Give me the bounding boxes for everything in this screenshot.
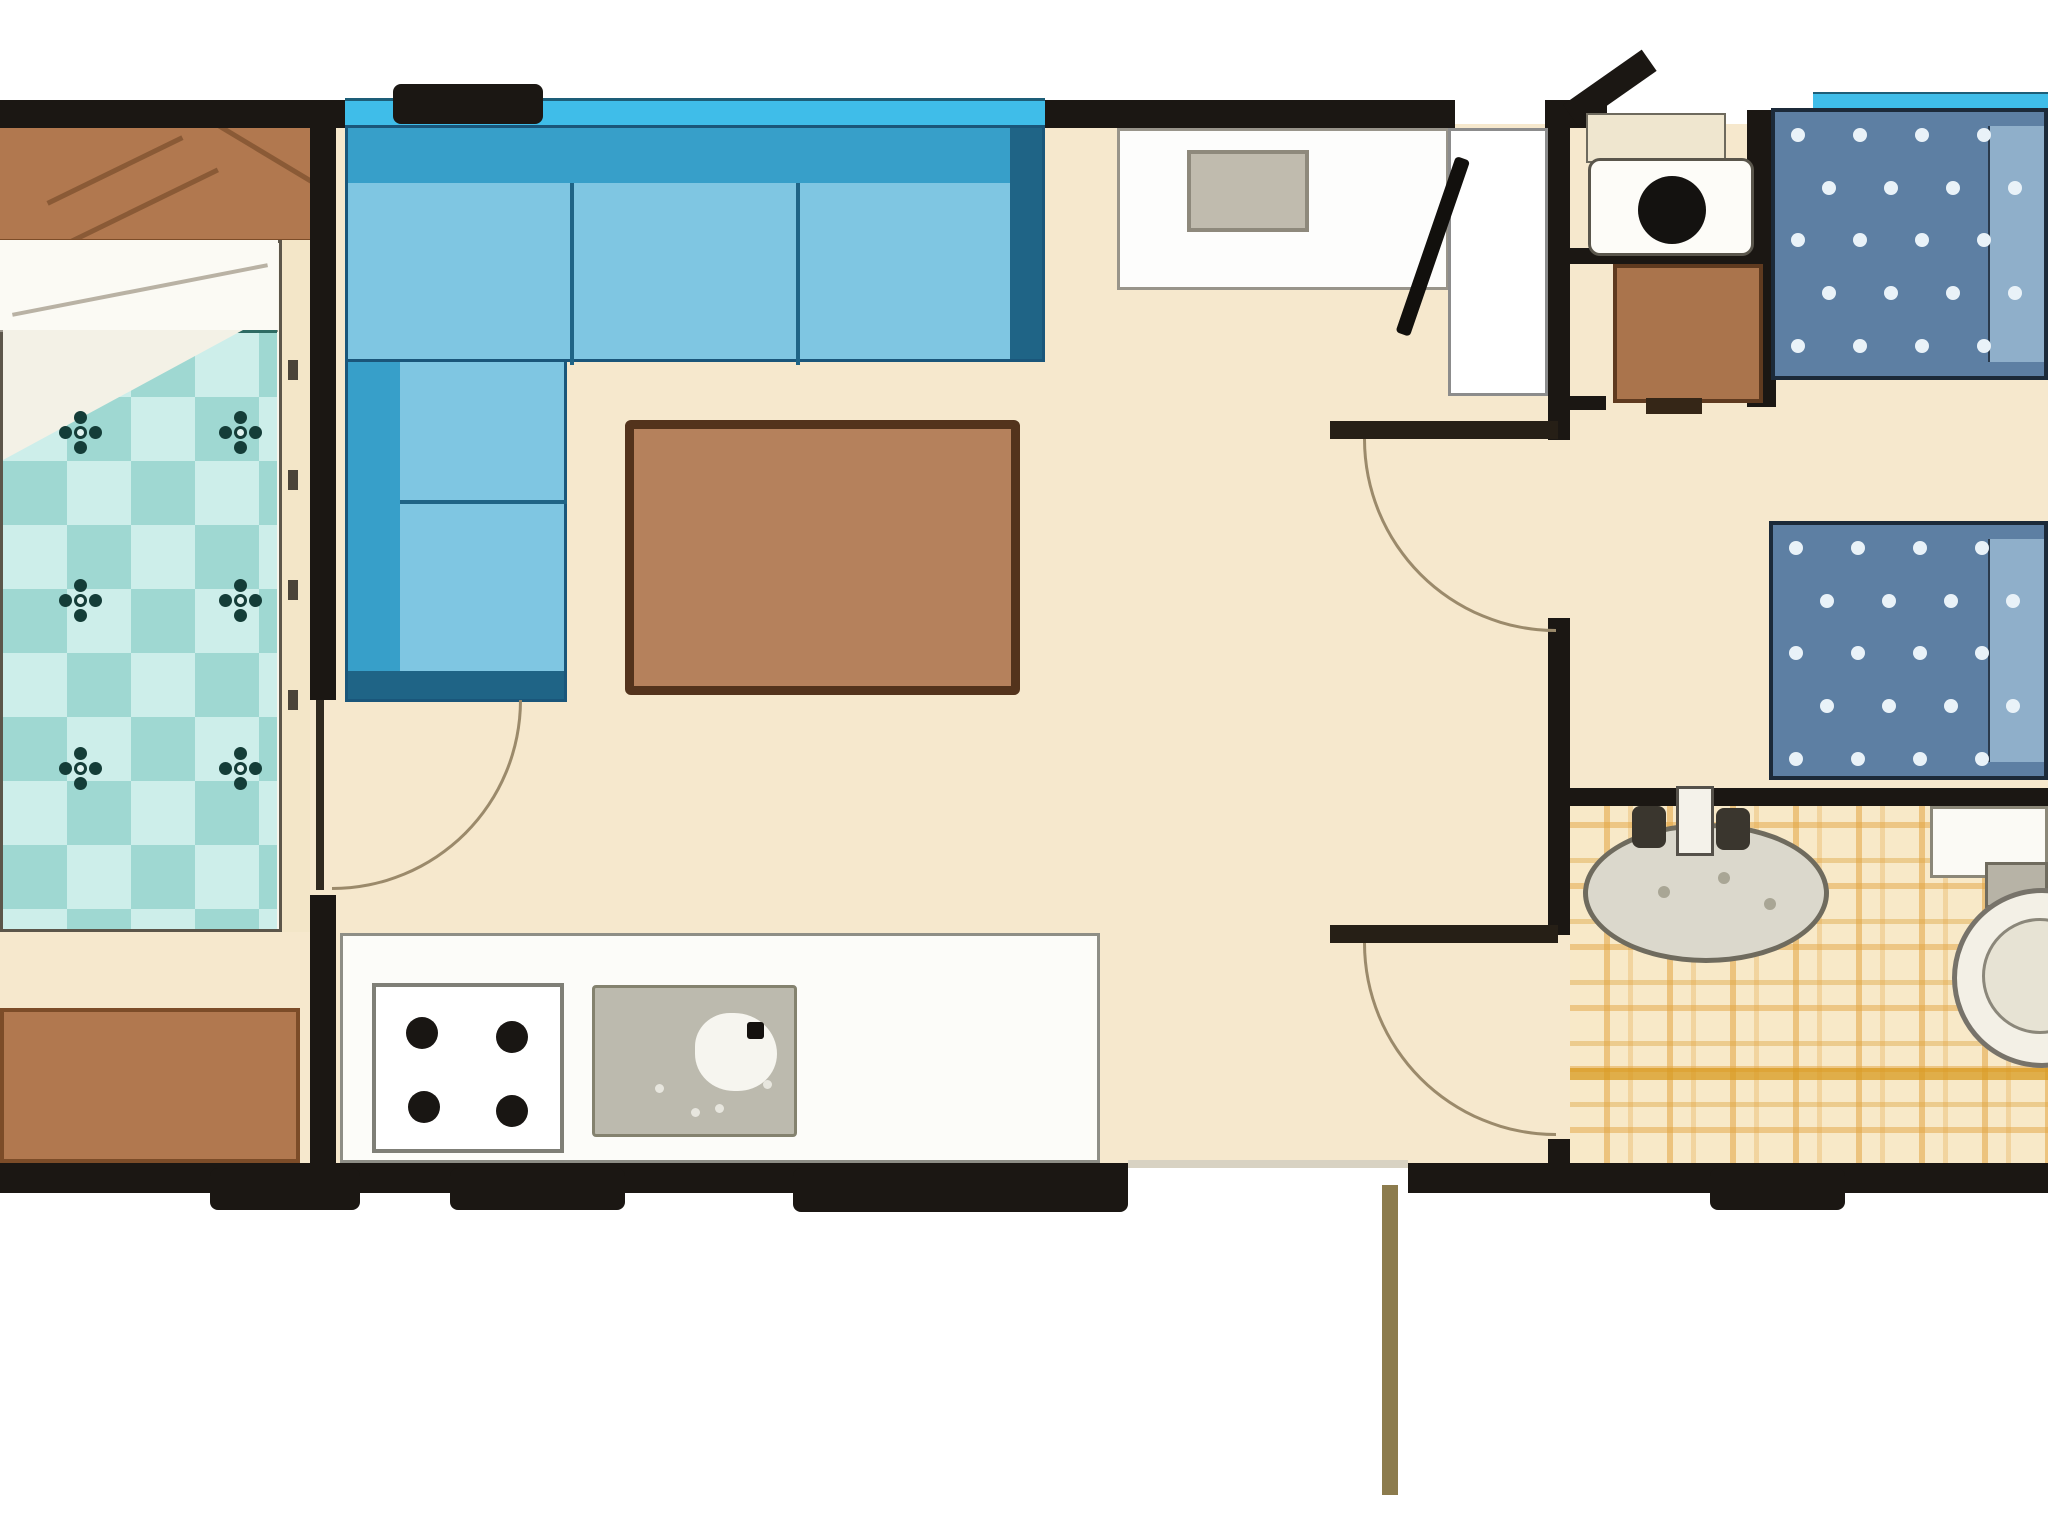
polka-dot-icon [1975,541,1989,555]
four-burner-hob [372,983,564,1153]
duvet-flower-icon [74,594,87,607]
sofa-seam [570,183,574,365]
hob-burner-icon [406,1017,438,1049]
chassis-bump-1 [210,1168,360,1210]
chassis-bump-2 [450,1168,625,1210]
basin-tap-right-icon [1716,808,1750,850]
basin-speckle-icon [1658,886,1670,898]
double-bed-pillow [0,240,278,332]
duvet-flower-icon [74,426,87,439]
sofa-top-arm [345,125,1045,362]
duvet-flower-icon [234,594,247,607]
polka-dot-icon [2006,594,2020,608]
corridor-door-leaf [1330,421,1558,439]
polka-dot-icon [1791,128,1805,142]
chassis-bump-3 [793,1168,1128,1212]
polka-dot-icon [1851,646,1865,660]
polka-dot-icon [1944,594,1958,608]
polka-dot-icon [1822,181,1836,195]
rear-door-threshold [1128,1160,1408,1168]
basin-tap-left-icon [1632,806,1666,848]
bedside-handle-icon [288,470,298,490]
duvet-flower-icon [234,426,247,439]
wc-bowl-icon [1638,176,1706,244]
hob-burner-icon [496,1095,528,1127]
basin-speckle-icon [1764,898,1776,910]
bathroom-door-leaf [1330,925,1558,943]
polka-dot-icon [1853,233,1867,247]
polka-dot-icon [1915,339,1929,353]
tap-icon [747,1022,764,1039]
polka-dot-icon [1822,286,1836,300]
sofa-backrest [348,362,400,699]
wall-bathroom-top [1560,788,2048,806]
polka-dot-icon [1913,541,1927,555]
wall-hall-right-middle [1548,618,1570,935]
polka-dot-icon [1820,699,1834,713]
twin-bed-2-pillow [1988,539,2044,762]
coffee-table [625,420,1020,695]
polka-dot-icon [1977,339,1991,353]
sofa-seam [400,500,567,504]
duvet-flower-icon [74,762,87,775]
hob-burner-icon [496,1021,528,1053]
polka-dot-icon [1851,541,1865,555]
sofa-armrest [1010,128,1042,359]
wall-hall-right-lower [1548,1139,1570,1167]
twin-bed-2 [1769,521,2048,780]
kitchen-sink-drainer [592,985,797,1137]
wall-hall-stub [1548,396,1606,410]
drainer-dot-icon [763,1080,772,1089]
wc-cistern [1586,113,1726,163]
polka-dot-icon [1851,752,1865,766]
polka-dot-icon [1884,286,1898,300]
polka-dot-icon [1882,594,1896,608]
polka-dot-icon [2008,286,2022,300]
twin-bed-1 [1771,108,2048,380]
duvet-flower-icon [234,762,247,775]
polka-dot-icon [1944,699,1958,713]
drainer-dot-icon [655,1084,664,1093]
storage-cabinet [1613,264,1763,403]
twin-bed-1-pillow [1988,126,2044,362]
polka-dot-icon [1977,128,1991,142]
polka-dot-icon [2008,181,2022,195]
polka-dot-icon [1913,752,1927,766]
caravan-floor-plan [0,0,2048,1536]
cabinet-handle [1646,398,1702,414]
bench-cushion [1187,150,1309,232]
polka-dot-icon [1789,646,1803,660]
sofa-backrest [348,128,1042,183]
polka-dot-icon [1791,339,1805,353]
tile-gold-band [1570,1068,2048,1080]
polka-dot-icon [1791,233,1805,247]
basin-speckle-icon [1718,872,1730,884]
polka-dot-icon [1820,594,1834,608]
overhead-wardrobe [0,128,310,244]
polka-dot-icon [1946,286,1960,300]
wall-bedroom-divider-lower [310,895,336,1163]
bedside-handle-icon [288,580,298,600]
wall-hall-right-upper [1548,128,1570,440]
rear-entrance-door-leaf [1382,1185,1398,1495]
bedside-handle-icon [288,690,298,710]
sofa-seam [796,183,800,365]
polka-dot-icon [1853,339,1867,353]
drainer-dot-icon [691,1108,700,1117]
wall-bedroom-divider-upper [310,128,336,700]
sofa-end [348,671,564,699]
drainer-dot-icon [715,1104,724,1113]
polka-dot-icon [1882,699,1896,713]
polka-dot-icon [1884,181,1898,195]
bedside-handle-icon [288,360,298,380]
chassis-bump-top [393,84,543,124]
polka-dot-icon [1946,181,1960,195]
polka-dot-icon [1915,128,1929,142]
wardrobe-line-icon [1,168,219,244]
bedroom-door-leaf [316,700,324,890]
drawer-chest [0,1008,300,1163]
polka-dot-icon [1913,646,1927,660]
polka-dot-icon [2006,699,2020,713]
sofa-left-arm [345,362,567,702]
polka-dot-icon [1975,646,1989,660]
basin-faucet-icon [1676,786,1714,856]
chassis-bump-4 [1710,1168,1845,1210]
polka-dot-icon [1789,541,1803,555]
polka-dot-icon [1975,752,1989,766]
hob-burner-icon [408,1091,440,1123]
polka-dot-icon [1853,128,1867,142]
sink-bowl [695,1013,777,1091]
polka-dot-icon [1915,233,1929,247]
polka-dot-icon [1789,752,1803,766]
